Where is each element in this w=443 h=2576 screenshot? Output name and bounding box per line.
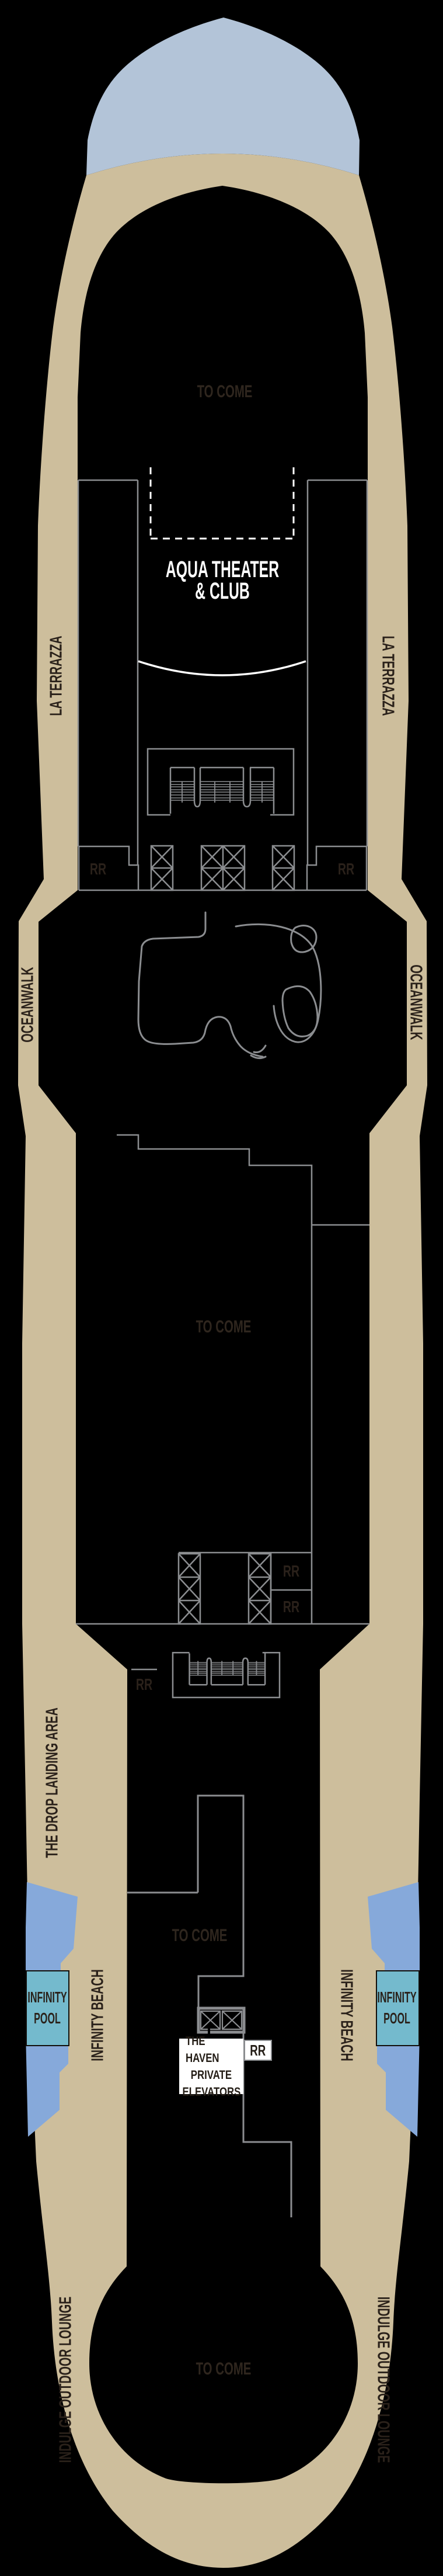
haven-line1: THE HAVEN xyxy=(186,2033,237,2067)
haven-line3: ELEVATORS xyxy=(182,2084,240,2101)
infinity-pool-label-starboard: INFINITY POOL xyxy=(377,1987,416,2029)
restroom-label-forward-port: RR xyxy=(90,861,106,877)
aqua-theater-line1: AQUA THEATER xyxy=(166,559,279,581)
indulge-lounge-label-port: INDULGE OUTDOOR LOUNGE xyxy=(58,2297,75,2463)
restroom-label-aft-stairs: RR xyxy=(136,1676,152,1693)
restroom-label-haven: RR xyxy=(244,2040,272,2061)
oceanwalk-label-starboard: OCEANWALK xyxy=(407,964,424,1040)
haven-line2: PRIVATE xyxy=(191,2067,232,2084)
drop-landing-area-label: THE DROP LANDING AREA xyxy=(44,1707,61,1858)
aqua-theater-line2: & CLUB xyxy=(166,581,279,602)
placeholder-label-aft: TO COME xyxy=(172,1927,228,1945)
infinity-beach-label-port: INFINITY BEACH xyxy=(90,1969,107,2061)
indulge-lounge-label-starboard: INDULGE OUTDOOR LOUNGE xyxy=(375,2297,392,2463)
elevator-bank-forward xyxy=(151,846,294,890)
bow-cap xyxy=(86,18,360,175)
infinity-pool-line1: INFINITY xyxy=(27,1987,67,2008)
placeholder-label-bow: TO COME xyxy=(197,383,253,401)
placeholder-label-stern: TO COME xyxy=(196,2360,252,2378)
placeholder-label-midship: TO COME xyxy=(196,1318,252,1336)
restroom-label-forward-starboard: RR xyxy=(338,861,354,877)
la-terrazza-label-starboard: LA TERRAZZA xyxy=(379,636,396,716)
aqua-theater-label: AQUA THEATER & CLUB xyxy=(166,559,279,602)
infinity-pool-line2: POOL xyxy=(377,2008,416,2029)
haven-elevators-label: THE HAVEN PRIVATE ELEVATORS xyxy=(179,2039,243,2094)
infinity-beach-label-starboard: INFINITY BEACH xyxy=(338,1969,355,2061)
infinity-pool-line2: POOL xyxy=(27,2008,67,2029)
la-terrazza-label-port: LA TERRAZZA xyxy=(48,636,65,716)
restroom-haven-text: RR xyxy=(250,2042,266,2060)
infinity-pool-line1: INFINITY xyxy=(377,1987,416,2008)
deck-plan-page: TO COME AQUA THEATER & CLUB LA TERRAZZA … xyxy=(0,0,443,2576)
infinity-pool-label-port: INFINITY POOL xyxy=(27,1987,67,2029)
restroom-label-mid-upper: RR xyxy=(283,1563,299,1579)
oceanwalk-label-port: OCEANWALK xyxy=(20,967,37,1042)
restroom-label-mid-lower: RR xyxy=(283,1599,299,1615)
